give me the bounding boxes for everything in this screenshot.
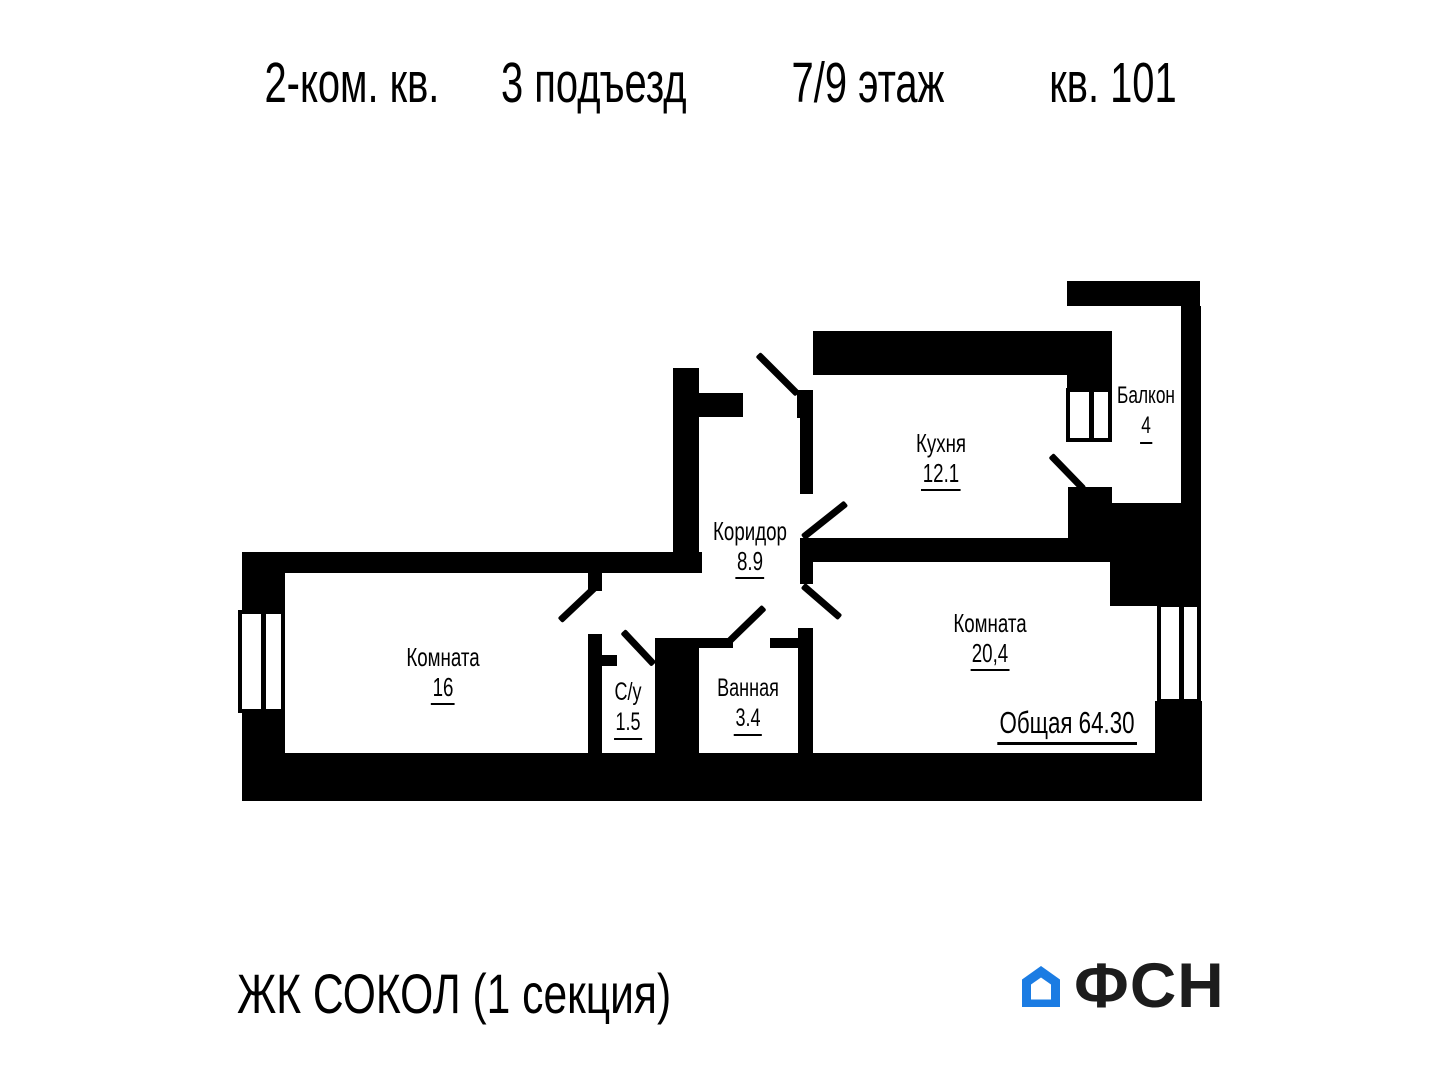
wall-corridor-right-low: [800, 562, 813, 584]
wall-left-bottom-block: [242, 710, 285, 760]
window-mullion: [261, 614, 266, 709]
wall-wc-bath-center: [655, 638, 699, 753]
title-entrance: 3 подъезд: [501, 52, 687, 114]
room-label-balcony: Балкон 4: [1117, 381, 1175, 444]
wall-room1-top: [242, 552, 702, 573]
developer-logo: ФСН: [1016, 960, 1222, 1012]
door-room2: [801, 583, 843, 620]
wall-corridor-right-mid: [800, 418, 813, 494]
brand-text: ФСН: [1074, 960, 1225, 1012]
room-name: Ванная: [717, 673, 779, 703]
title-floor: 7/9 этаж: [791, 52, 944, 114]
title-apartment-number: кв. 101: [1049, 52, 1176, 114]
room-label-room1: Комната 16: [406, 642, 479, 705]
room-name: Комната: [406, 642, 479, 672]
room-area: 4: [1140, 411, 1152, 444]
room-name: Коридор: [713, 516, 787, 546]
door-bath: [727, 605, 767, 644]
wall-balcony-top: [1067, 281, 1200, 306]
door-kitchen: [801, 501, 848, 541]
wall-kitchen-balcony-top: [1067, 331, 1112, 388]
house-icon: [1016, 961, 1066, 1011]
wall-corridor-left: [673, 368, 699, 573]
page-title: 2-ком. кв.3 подъезд7/9 этажкв. 101: [0, 52, 1441, 114]
room-name: С/у: [614, 677, 642, 707]
total-area: Общая 64.30: [997, 706, 1136, 745]
door-entrance: [756, 352, 801, 397]
room-label-wc: С/у 1.5: [614, 677, 642, 740]
door-wc: [620, 629, 656, 667]
title-apartment-type: 2-ком. кв.: [264, 52, 439, 114]
wall-balcony-bottom-block: [1068, 487, 1112, 562]
window-room1-left: [238, 610, 285, 713]
wall-bath-top-right-jamb: [770, 638, 798, 648]
wall-room2-top: [810, 540, 1157, 550]
room-area: 3.4: [734, 703, 762, 736]
total-area-value: 64.30: [1079, 705, 1135, 740]
room-label-kitchen: Кухня 12.1: [916, 428, 966, 491]
room-area: 8.9: [736, 546, 765, 579]
room-area: 12.1: [921, 458, 960, 491]
window-mullion: [1179, 607, 1184, 699]
room-area: 20,4: [970, 638, 1009, 671]
door-balcony: [1048, 453, 1086, 492]
room-label-bath: Ванная 3.4: [717, 673, 779, 736]
project-name: ЖК СОКОЛ (1 секция): [237, 963, 671, 1025]
wall-corridor-right-top: [797, 390, 813, 418]
window-mullion: [1089, 392, 1094, 438]
room-area: 1.5: [614, 707, 642, 740]
room-label-corridor: Коридор 8.9: [713, 516, 787, 579]
wall-kitchen-top: [813, 331, 1067, 375]
wall-corridor-left-stub: [699, 393, 743, 417]
wall-bath-right: [798, 628, 813, 753]
room-area: 16: [431, 672, 455, 705]
wall-wc-top-stub: [588, 655, 617, 666]
wall-right-corner-block: [1110, 503, 1201, 606]
window-room2-right: [1157, 603, 1201, 703]
room-name: Комната: [953, 608, 1026, 638]
room-name: Кухня: [916, 428, 966, 458]
total-area-label: Общая: [999, 705, 1072, 740]
room-name: Балкон: [1117, 381, 1175, 411]
room-label-room2: Комната 20,4: [953, 608, 1026, 671]
window-kitchen-balcony: [1066, 388, 1112, 442]
floor-plan-page: 2-ком. кв.3 подъезд7/9 этажкв. 101 Балко: [0, 0, 1441, 1081]
door-room1: [558, 584, 599, 623]
wall-right-below-window: [1155, 701, 1202, 761]
wall-room1-right-main: [588, 634, 602, 753]
wall-bottom: [242, 753, 1202, 801]
